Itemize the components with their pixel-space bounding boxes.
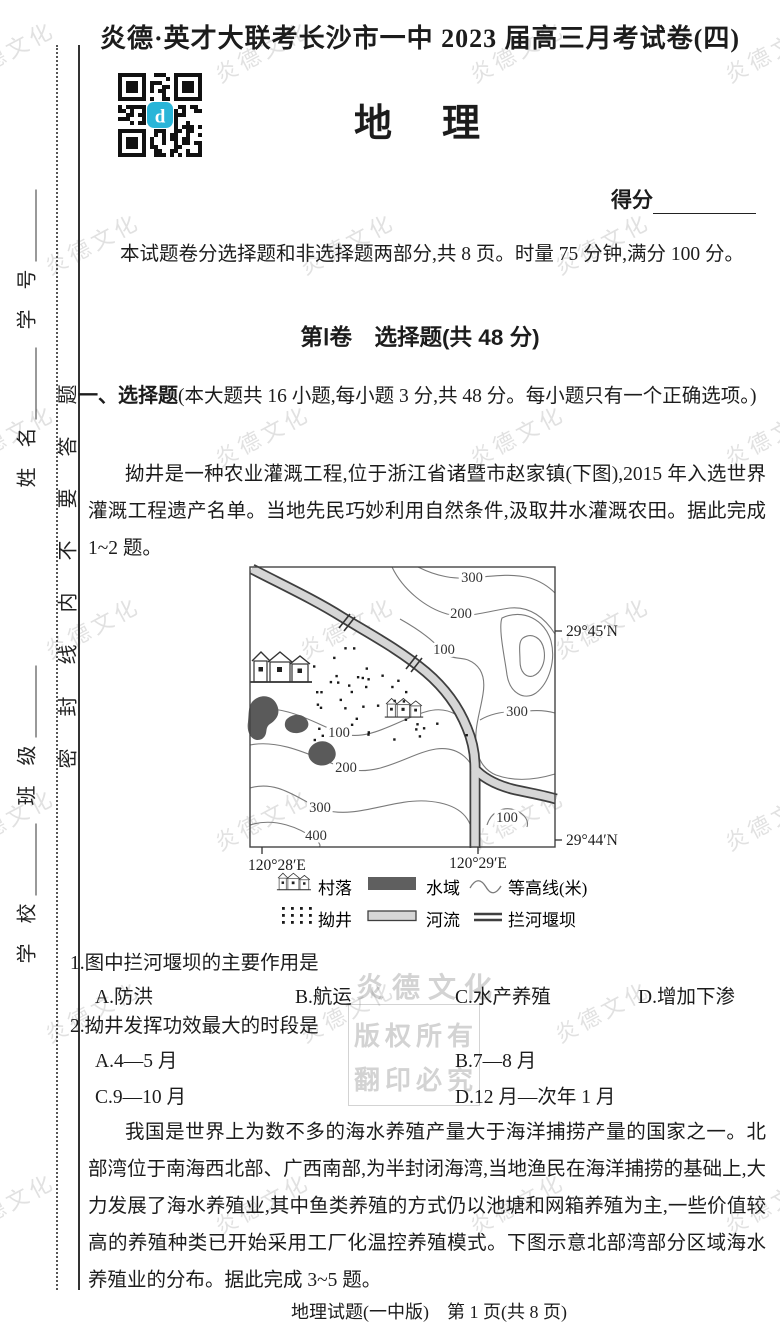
coordinate-labels: 120°28′E 120°29′E 29°45′N 29°44′N [248, 623, 618, 874]
score-box: 得分 [611, 184, 756, 214]
seal-line-text: 密封线内不要答题 [52, 328, 81, 794]
passage-aquaculture: 我国是世界上为数不多的海水养殖产量大于海洋捕捞产量的国家之一。北部湾位于南海西北… [88, 1114, 766, 1299]
contour-label: 300 [309, 800, 331, 816]
longitude-label: 120°28′E [248, 857, 306, 874]
score-blank-line [653, 192, 756, 214]
contour-label: 200 [335, 760, 357, 776]
question-1-option-a: A.防洪 [95, 980, 153, 1009]
passage-aojing: 拗井是一种农业灌溉工程,位于浙江省诸暨市赵家镇(下图),2015 年入选世界灌溉… [88, 456, 766, 567]
map-legend: 村落 水域 等高线(米) 拗井 河流 拦河堰坝 [277, 873, 587, 930]
field-class-label: 班 级 [11, 746, 40, 806]
student-info-fields: 学 校 班 级 姓 名 学 号 [11, 168, 40, 996]
legend-water-label: 水域 [426, 879, 460, 898]
contour-label: 300 [461, 570, 483, 586]
field-class-blank [32, 666, 37, 738]
subject-title: 地 理 [70, 92, 770, 147]
question-2-options-row1: A.4—5 月 B.7—8 月 [70, 1044, 770, 1070]
page-footer: 地理试题(一中版) 第 1 页(共 8 页) [70, 1298, 780, 1324]
legend-weir-icon [474, 914, 502, 920]
field-studentid-blank [32, 190, 37, 262]
question-2-option-d: D.12 月—次年 1 月 [455, 1080, 615, 1109]
directions-label: 一、选择题 [78, 385, 178, 407]
field-gap [39, 502, 40, 662]
contour-label: 300 [506, 704, 528, 720]
legend-weir-label: 拦河堰坝 [508, 911, 576, 930]
legend-contour-icon [470, 881, 501, 893]
question-1-option-b: B.航运 [295, 980, 352, 1009]
contour-label: 100 [496, 810, 518, 826]
question-1-option-c: C.水产养殖 [455, 980, 551, 1009]
legend-water-icon [368, 877, 416, 890]
score-label: 得分 [611, 189, 653, 212]
question-1-stem: 1.图中拦河堰坝的主要作用是 [70, 946, 319, 975]
watermark-tile: 炎德文化 [719, 780, 780, 857]
legend-river-icon [368, 911, 416, 921]
watermark-tile: 炎德文化 [0, 1164, 60, 1241]
legend-well-label: 拗井 [318, 911, 352, 930]
section-heading: 第Ⅰ卷 选择题(共 48 分) [70, 320, 770, 352]
water-areas [248, 696, 336, 765]
question-2-stem: 2.拗井发挥功效最大的时段是 [70, 1009, 319, 1038]
field-name-blank [32, 348, 37, 420]
watermark-tile: 炎德文化 [0, 12, 60, 89]
latitude-label: 29°45′N [566, 623, 618, 640]
contour-label: 200 [450, 606, 472, 622]
legend-village-label: 村落 [318, 879, 352, 898]
legend-village-icon [277, 873, 311, 890]
legend-river-label: 河流 [426, 911, 460, 930]
longitude-label: 120°29′E [449, 855, 507, 872]
field-name-label: 姓 名 [11, 428, 40, 488]
question-1-options: A.防洪 B.航运 C.水产养殖 D.增加下渗 [70, 980, 770, 1006]
legend-contour-label: 等高线(米) [508, 879, 587, 898]
question-2-options-row2: C.9—10 月 D.12 月—次年 1 月 [70, 1080, 770, 1106]
exam-header-title: 炎德·英才大联考长沙市一中 2023 届高三月考试卷(四) [70, 18, 770, 55]
latitude-label: 29°44′N [566, 832, 618, 849]
question-2-option-c: C.9—10 月 [95, 1080, 186, 1109]
contour-label: 100 [433, 642, 455, 658]
contour-map-figure: 300 200 100 300 100 200 300 400 100 120°… [240, 562, 640, 954]
exam-instructions: 本试题卷分选择题和非选择题两部分,共 8 页。时量 75 分钟,满分 100 分… [83, 236, 765, 273]
question-2-option-b: B.7—8 月 [455, 1044, 536, 1073]
contour-label: 400 [305, 828, 327, 844]
directions-text: (本大题共 16 小题,每小题 3 分,共 48 分。每小题只有一个正确选项。) [178, 386, 757, 407]
field-school-label: 学 校 [11, 904, 40, 964]
section-directions: 一、选择题(本大题共 16 小题,每小题 3 分,共 48 分。每小题只有一个正… [78, 376, 768, 417]
field-studentid-label: 学 号 [11, 270, 40, 330]
legend-well-icon [282, 907, 312, 924]
contour-label: 100 [328, 725, 350, 741]
question-2-option-a: A.4—5 月 [95, 1044, 177, 1073]
question-1-option-d: D.增加下渗 [638, 980, 735, 1009]
field-school-blank [32, 824, 37, 896]
